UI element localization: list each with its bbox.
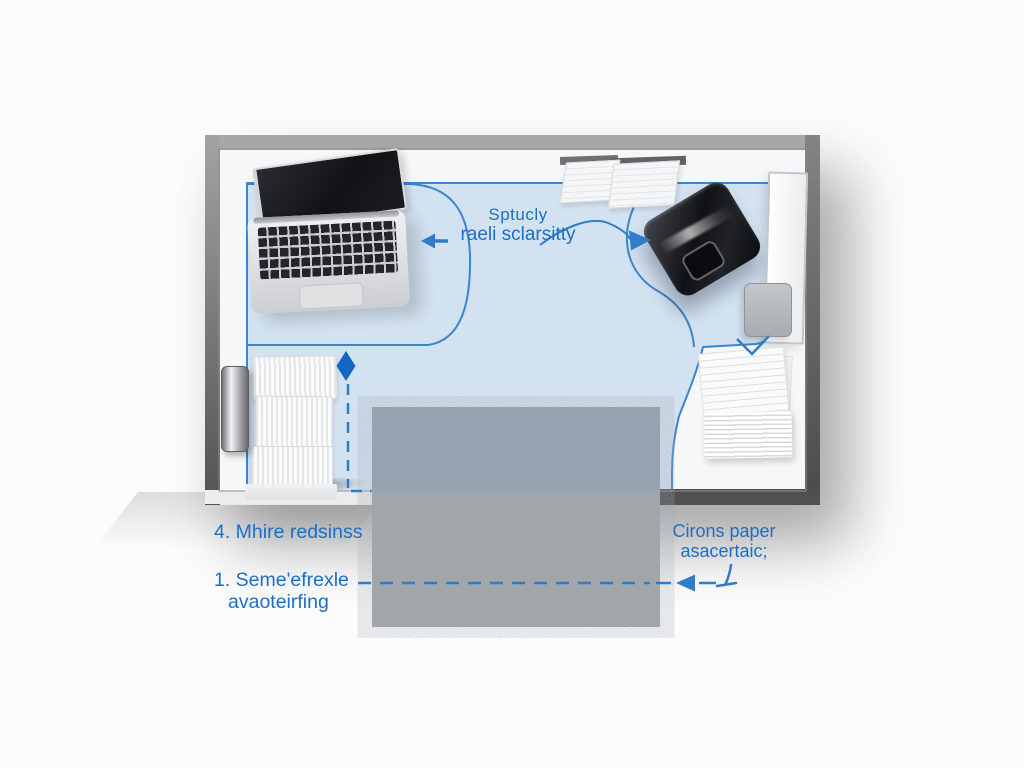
laptop-trackpad bbox=[299, 282, 364, 309]
note-left-bottom-line1: 1. Seme'efrexle bbox=[214, 570, 349, 592]
note-right-line1: Cirons paper bbox=[648, 521, 800, 541]
wall-top bbox=[205, 135, 820, 150]
paper-tray bbox=[251, 446, 333, 488]
laptop-body bbox=[247, 210, 410, 314]
note-left-bottom: 1. Seme'efrexle avaoteirfing bbox=[214, 570, 349, 614]
center-label-line1: Sptucly bbox=[428, 205, 608, 224]
center-label: Sptucly raeli sclarsitty bbox=[428, 205, 608, 245]
paper-tray bbox=[253, 355, 338, 400]
laptop bbox=[244, 152, 414, 314]
printer-gloss-highlight bbox=[658, 205, 734, 255]
paper-stack-pile bbox=[704, 411, 793, 459]
room-base-drawing bbox=[0, 0, 1024, 768]
rug bbox=[372, 407, 660, 627]
note-right: Cirons paper asacertaic; bbox=[648, 521, 800, 561]
wall-left bbox=[205, 135, 220, 505]
side-box bbox=[744, 283, 792, 337]
center-label-line2: raeli sclarsitty bbox=[428, 224, 608, 245]
paper-tray bbox=[255, 396, 333, 449]
paper-stack bbox=[701, 350, 797, 460]
laptop-keyboard bbox=[258, 221, 399, 280]
wall-handle bbox=[221, 366, 249, 452]
paper-sheet bbox=[608, 160, 680, 208]
paper-tray-base bbox=[245, 484, 337, 500]
printer-panel-detail bbox=[680, 239, 728, 283]
floor-plan-scene: Sptucly raeli sclarsitty 4. Mhire redsin… bbox=[0, 0, 1024, 768]
paper-trays bbox=[244, 356, 342, 504]
note-right-line2: asacertaic; bbox=[648, 541, 800, 561]
note-left-top: 4. Mhire redsinss bbox=[214, 522, 362, 544]
note-left-bottom-line2: avaoteirfing bbox=[214, 592, 349, 614]
